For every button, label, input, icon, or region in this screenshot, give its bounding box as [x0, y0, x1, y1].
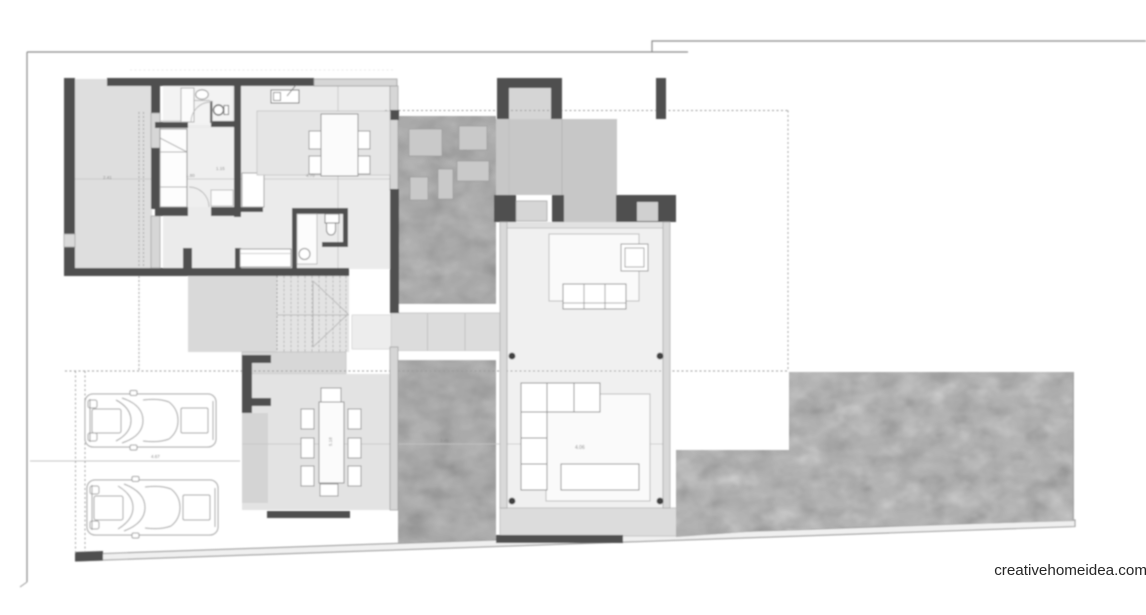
svg-text:4.67: 4.67: [151, 454, 160, 459]
svg-text:creativehomeidea.com: creativehomeidea.com: [994, 562, 1146, 579]
svg-text:2.41: 2.41: [103, 175, 112, 180]
svg-text:3.45: 3.45: [440, 438, 449, 443]
svg-text:4.06: 4.06: [575, 445, 585, 451]
svg-text:5.18: 5.18: [328, 437, 333, 446]
svg-text:1.15: 1.15: [216, 166, 225, 171]
svg-text:1.80: 1.80: [186, 173, 195, 178]
svg-text:4.70: 4.70: [306, 173, 315, 178]
